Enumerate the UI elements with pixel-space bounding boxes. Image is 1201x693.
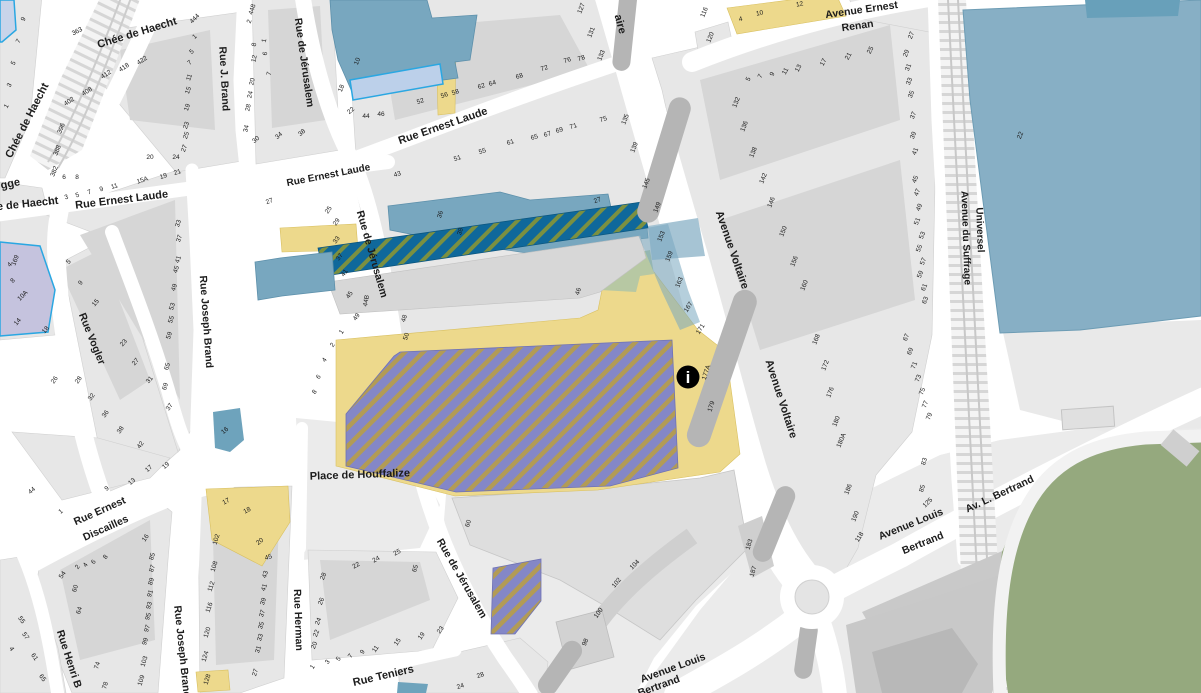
parcel-number: 6 [62, 174, 66, 181]
svg-text:i: i [686, 368, 691, 387]
street-label: Universel [973, 207, 986, 253]
map-viewport[interactable]: Chée de HaechtChée de Haechte de Haechtg… [0, 0, 1201, 693]
street-label: Rue Herman [291, 589, 305, 651]
parcel-number: 20 [146, 154, 154, 161]
parcel-number: 44 [362, 113, 370, 120]
map-canvas[interactable]: Chée de HaechtChée de Haechte de Haechtg… [0, 0, 1201, 693]
parcel-number: 8 [75, 174, 79, 181]
parcel-number: 24 [172, 154, 180, 161]
parcel-number: 46 [377, 111, 385, 118]
info-icon[interactable]: i [677, 366, 700, 389]
